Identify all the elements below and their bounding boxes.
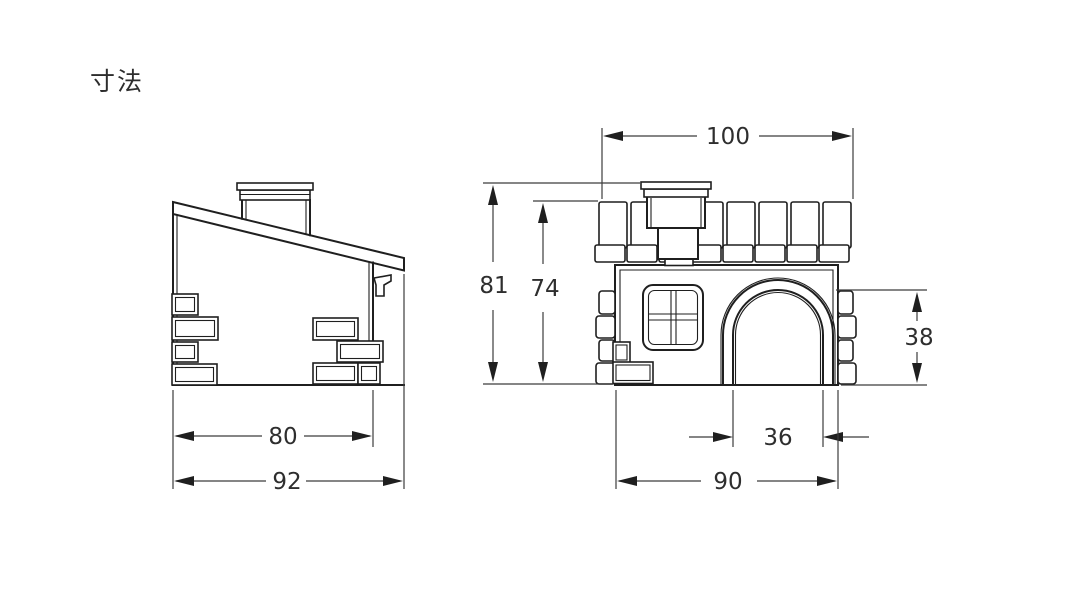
front-chimney-body — [647, 197, 705, 229]
arrowhead-down — [488, 362, 498, 382]
front-bricks-left — [596, 291, 615, 384]
roof-tile — [727, 202, 755, 248]
roof-tile-foot — [627, 245, 657, 262]
side-view — [172, 183, 404, 385]
roof-tile — [599, 202, 627, 248]
side-body-depth-label: 80 — [268, 424, 297, 450]
arrowhead-right — [713, 432, 733, 442]
brick — [838, 363, 856, 384]
arrowhead-right — [817, 476, 837, 486]
arrowhead-right — [832, 131, 852, 141]
roof-tile — [759, 202, 787, 248]
front-body-width-label: 90 — [713, 469, 742, 495]
front-bricks-right — [838, 291, 856, 384]
dim-front-body-height: 74 — [530, 201, 598, 382]
front-view — [595, 182, 856, 385]
roof-tile-foot — [755, 245, 785, 262]
arrowhead-up — [488, 185, 498, 205]
front-door-height-label: 38 — [904, 325, 933, 351]
arrowhead-down — [538, 362, 548, 382]
roof-tile-foot — [723, 245, 753, 262]
roof-tile — [791, 202, 819, 248]
roof-tile-foot — [787, 245, 817, 262]
window-frame — [643, 285, 703, 350]
roof-tile-foot — [819, 245, 849, 262]
front-window — [643, 285, 703, 350]
arrowhead-left — [174, 476, 194, 486]
brick — [838, 291, 853, 314]
arrowhead-right — [352, 431, 372, 441]
arrowhead-down — [912, 363, 922, 383]
brick — [838, 340, 853, 361]
arrowhead-up — [538, 203, 548, 223]
roof-tile — [823, 202, 851, 248]
arrowhead-left — [174, 431, 194, 441]
roof-tile-foot — [595, 245, 625, 262]
front-body-height-label: 74 — [530, 276, 559, 302]
dimension-drawing-page: 寸法 — [0, 0, 1080, 605]
brick — [596, 316, 615, 338]
technical-drawing: 80 92 — [0, 0, 1080, 605]
front-roof-tiles — [595, 202, 851, 262]
side-gutter — [374, 275, 391, 296]
arrowhead-left — [617, 476, 637, 486]
side-overall-depth-label: 92 — [272, 469, 301, 495]
brick — [838, 316, 856, 338]
arrowhead-right — [383, 476, 403, 486]
front-chimney-cap-band — [644, 189, 708, 197]
front-chimney-mid — [658, 228, 698, 259]
dim-front-door-width: 36 — [689, 390, 869, 451]
front-roof-width-label: 100 — [706, 124, 750, 150]
side-chimney-cap-top — [237, 183, 313, 190]
front-chimney-cap-top — [641, 182, 711, 189]
arrowhead-up — [912, 292, 922, 312]
arrowhead-left — [823, 432, 843, 442]
side-bricks-left — [172, 294, 218, 385]
dim-side-body-depth: 80 — [174, 424, 372, 450]
front-door-width-label: 36 — [763, 425, 792, 451]
brick — [596, 363, 615, 384]
dim-side-overall-depth: 92 — [174, 469, 403, 495]
arrowhead-left — [603, 131, 623, 141]
side-roof — [173, 202, 404, 271]
dim-front-body-width: 90 — [616, 390, 838, 495]
front-overall-height-label: 81 — [479, 273, 508, 299]
brick — [599, 291, 615, 314]
dim-front-roof-width: 100 — [602, 124, 853, 199]
